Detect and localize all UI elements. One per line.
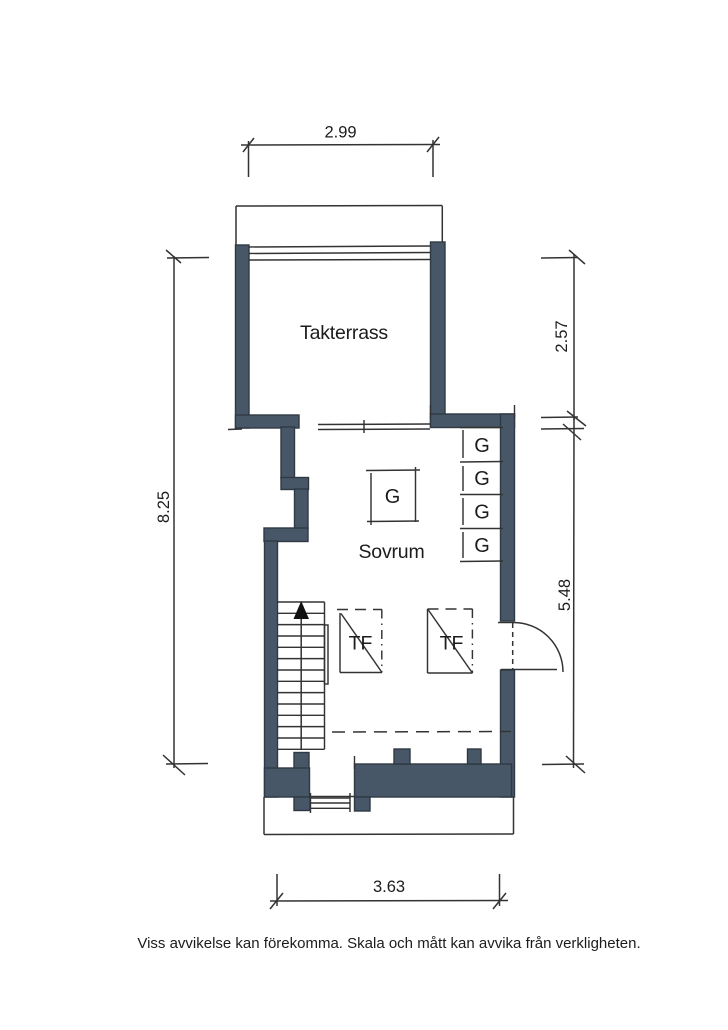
svg-text:G: G — [385, 486, 401, 508]
svg-text:2.57: 2.57 — [553, 320, 571, 352]
svg-text:Viss avvikelse kan förekomma.: Viss avvikelse kan förekomma. Skala och … — [137, 935, 640, 952]
svg-text:2.99: 2.99 — [324, 124, 356, 142]
svg-text:8.25: 8.25 — [155, 491, 173, 523]
svg-text:TF: TF — [349, 633, 373, 655]
svg-text:TF: TF — [440, 633, 464, 655]
svg-text:G: G — [474, 468, 490, 490]
svg-text:3.63: 3.63 — [373, 878, 405, 896]
svg-text:G: G — [474, 502, 490, 524]
svg-text:Sovrum: Sovrum — [359, 541, 425, 563]
svg-text:Takterrass: Takterrass — [300, 322, 388, 344]
svg-text:5.48: 5.48 — [556, 579, 574, 611]
svg-text:G: G — [474, 435, 490, 457]
svg-text:G: G — [474, 535, 490, 557]
